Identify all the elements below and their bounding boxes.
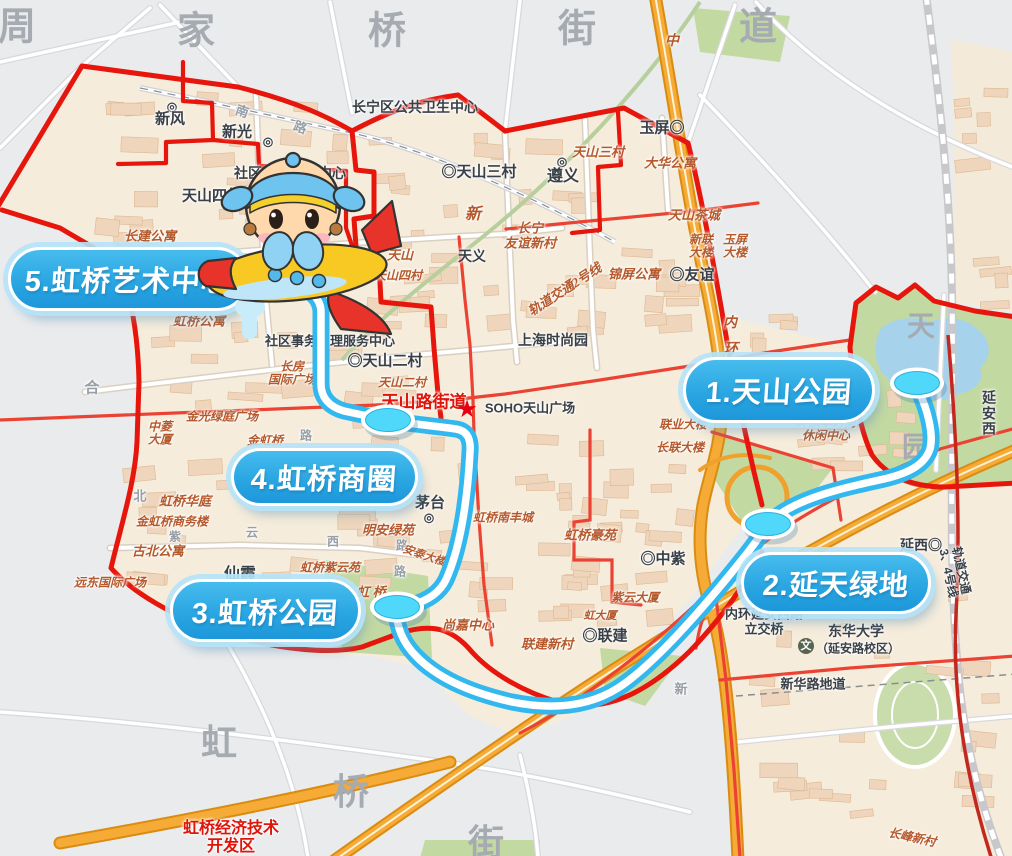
stop-label-text: 2.延天绿地 (761, 562, 910, 604)
plane-nose (199, 258, 236, 289)
stop-label-pill-4: 4.虹桥商圈 (231, 448, 418, 506)
stop-label-pill-1: 1.天山公园 (683, 357, 875, 423)
plane-wing (328, 291, 391, 334)
stop-label-pill-3: 3.虹桥公园 (170, 579, 361, 642)
stop-label-text: 4.虹桥商圈 (250, 456, 399, 498)
tour-route-map: 周家桥街道虹桥街天园合南路北紫云西路路路新◎新风新光◎天山四村社区卫生服务中心长… (0, 0, 1012, 856)
stop-label-text: 3.虹桥公园 (191, 590, 340, 632)
airplane-mascot (180, 133, 430, 348)
stop-label-pill-2: 2.延天绿地 (741, 552, 931, 614)
mascot-eye (269, 209, 283, 229)
stop-pill-layer: 1.天山公园2.延天绿地3.虹桥公园4.虹桥商圈5.虹桥艺术中心 (0, 0, 1012, 856)
plane-tail-fin (362, 201, 401, 254)
stop-label-text: 1.天山公园 (704, 369, 853, 411)
